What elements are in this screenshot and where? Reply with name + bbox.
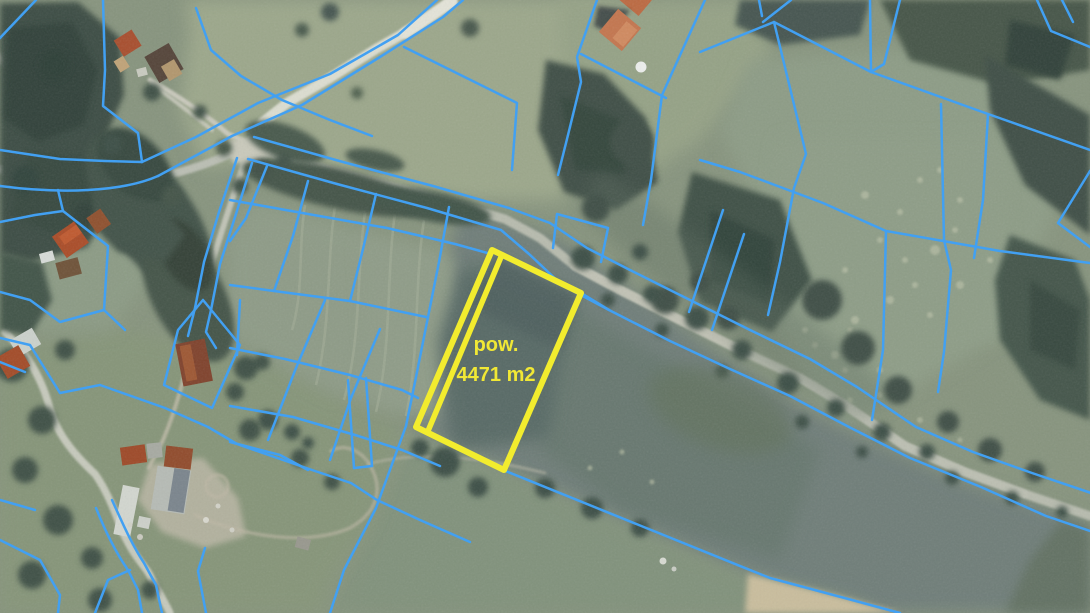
svg-text:4471 m2: 4471 m2 bbox=[457, 364, 536, 386]
svg-text:pow.: pow. bbox=[474, 334, 519, 356]
